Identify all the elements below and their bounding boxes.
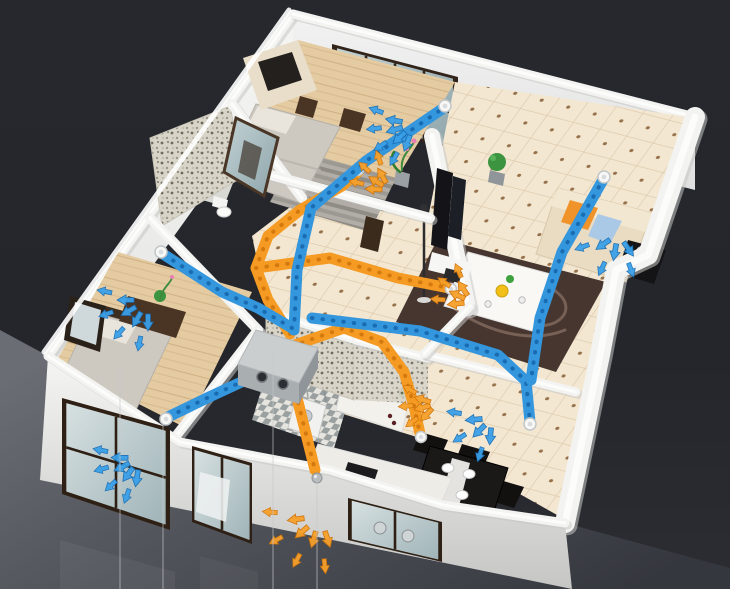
- supply-diffuser-bedroom2-wall: [155, 246, 167, 258]
- teapot: [496, 285, 508, 297]
- supply-diffuser-bedroom1: [439, 100, 451, 112]
- toilet: [217, 207, 231, 217]
- orchid-bloom: [412, 139, 417, 144]
- floor-lamp-base: [417, 297, 431, 303]
- hrv-port: [278, 379, 288, 389]
- stove-pan-through-window: [374, 522, 386, 534]
- wine-bottle: [392, 421, 396, 425]
- diffuser-core: [159, 250, 164, 255]
- diffuser-core: [443, 104, 448, 109]
- table-plant: [506, 275, 514, 283]
- living-plant: [488, 153, 506, 171]
- diffuser-core: [602, 175, 607, 180]
- supply-diffuser-living: [598, 171, 610, 183]
- dinner-plate: [442, 464, 454, 473]
- dresser-orchid-bloom: [170, 275, 174, 279]
- diffuser-core: [164, 417, 169, 422]
- supply-diffuser-dining: [524, 418, 536, 430]
- ventilation-floorplan-render: [0, 0, 730, 589]
- stove-pan-through-window: [402, 530, 414, 542]
- wine-bottle: [388, 414, 392, 418]
- dinner-plate: [463, 470, 475, 479]
- exhaust-grille-kitchen: [416, 432, 427, 443]
- diffuser-core: [528, 422, 533, 427]
- vent-ball-highlight: [314, 475, 317, 478]
- screenshot-root: 3D isometric cutaway rendering of an apa…: [0, 0, 730, 589]
- teacup: [519, 297, 525, 303]
- dinner-plate: [456, 491, 468, 500]
- hrv-port: [257, 372, 267, 382]
- supply-diffuser-bedroom2-low: [160, 413, 172, 425]
- teacup: [485, 301, 491, 307]
- living-plant-highlight: [490, 155, 496, 161]
- diffuser-core: [419, 435, 423, 439]
